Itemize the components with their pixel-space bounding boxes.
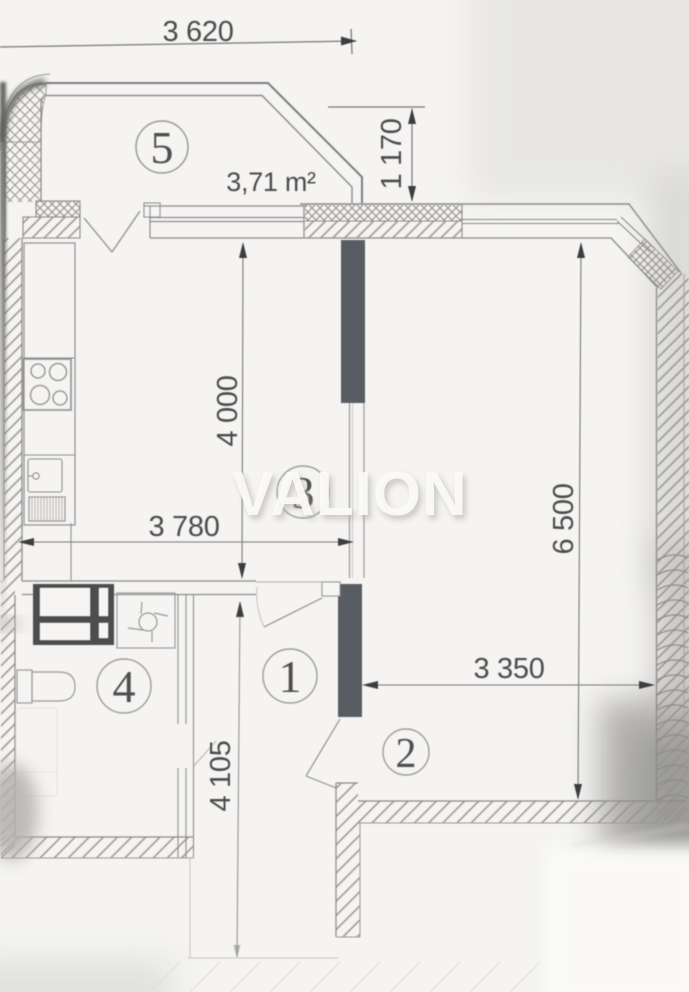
svg-text:2: 2 [396, 731, 417, 777]
svg-text:VALION: VALION [232, 460, 468, 529]
svg-text:3 620: 3 620 [162, 16, 233, 48]
svg-text:3,71 m²: 3,71 m² [226, 167, 316, 197]
svg-text:1 170: 1 170 [376, 118, 408, 189]
svg-text:1: 1 [279, 651, 302, 702]
svg-text:4 105: 4 105 [205, 740, 237, 811]
svg-text:5: 5 [151, 122, 174, 173]
svg-text:4 000: 4 000 [212, 375, 244, 446]
svg-text:3 780: 3 780 [148, 511, 219, 543]
svg-text:4: 4 [113, 661, 136, 712]
svg-text:3 350: 3 350 [473, 653, 544, 685]
svg-text:6 500: 6 500 [548, 483, 580, 554]
